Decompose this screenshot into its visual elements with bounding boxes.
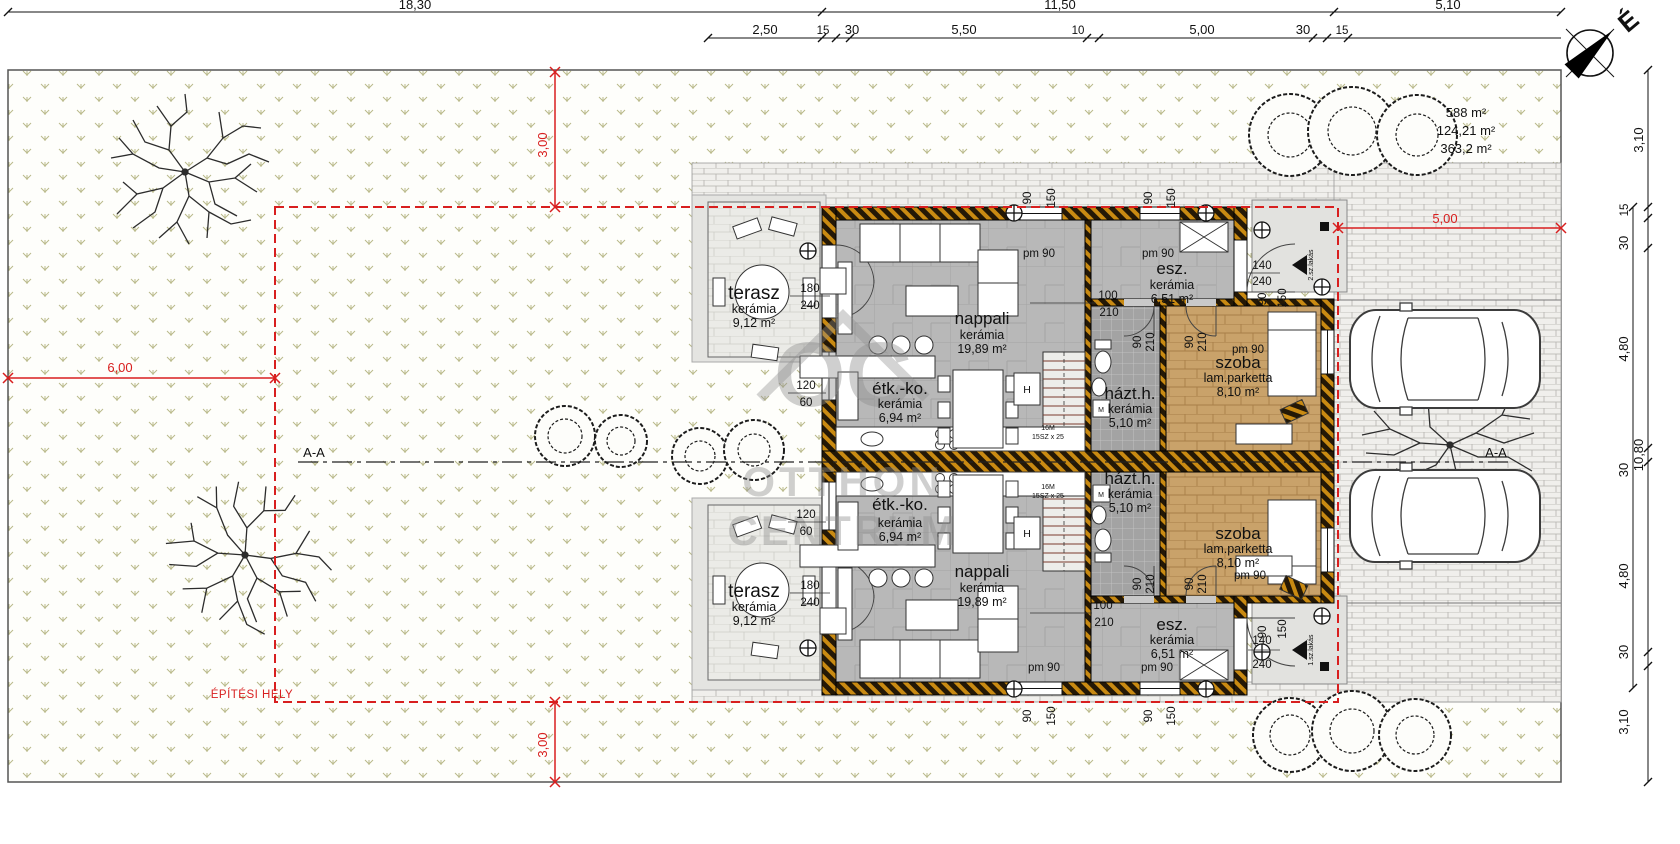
room-etkko-upper-area: 6,94 m² [879, 411, 921, 425]
paving-driveway [1334, 163, 1561, 702]
room-door-h: 210 [1145, 574, 1157, 593]
room-terasz-lower-area: 9,12 m² [733, 614, 775, 628]
room-nappali-lower-floor-label: kerámia [960, 581, 1005, 595]
stairs-note-upper-2: 15SZ x 25 [1032, 434, 1064, 441]
dining-table [953, 370, 1003, 448]
car [1350, 463, 1540, 569]
hall-door-h-upper: 210 [1099, 307, 1118, 319]
terrace-door-h-lower: 240 [800, 597, 819, 609]
dim-10: 10 [1072, 25, 1085, 37]
room-nappali-lower: nappali [955, 562, 1010, 581]
top-window-h: 150 [1046, 188, 1058, 207]
room-nappali-upper: nappali [955, 309, 1010, 328]
north-compass: É [1565, 4, 1645, 78]
room-door-h: 210 [1145, 332, 1157, 351]
bottom-window-h: 150 [1166, 706, 1178, 725]
entry-side-h-lower: 150 [1277, 619, 1289, 638]
section-label-right: A-A [1485, 445, 1507, 460]
kitchen-window-h-upper: 60 [800, 397, 813, 409]
car [1350, 303, 1540, 415]
room-hazth-upper-area: 5,10 m² [1109, 416, 1151, 430]
dim-right-30-mid: 30 [1616, 463, 1631, 477]
room-door-w: 90 [1184, 578, 1196, 591]
room-esz-upper-area: 6,51 m² [1151, 292, 1193, 306]
stairs-note-lower-1: 16M [1041, 484, 1055, 491]
entry-door-h-lower: 240 [1252, 659, 1271, 671]
room-szoba-lower: szoba [1215, 524, 1261, 543]
room-door-h: 210 [1197, 332, 1209, 351]
top-window-w: 90 [1143, 192, 1155, 205]
entry-door-w-upper: 140 [1252, 260, 1271, 272]
dim-right-4-80-top: 4,80 [1616, 336, 1631, 361]
entry-door-upper [1234, 240, 1247, 292]
toilet [1095, 351, 1111, 373]
hall-door-w-lower: 100 [1093, 600, 1112, 612]
dim-right-30-bottom: 30 [1616, 645, 1631, 659]
porch-post [1320, 662, 1329, 671]
top-window-w: 90 [1022, 192, 1034, 205]
dim-5-50: 5,50 [951, 22, 976, 37]
room-door-h: 210 [1197, 574, 1209, 593]
room-terasz-lower: terasz [728, 581, 780, 602]
dim-2-50: 2,50 [752, 22, 777, 37]
room-etkko-lower-floor-label: kerámia [878, 516, 923, 530]
area-124-21: 124,21 m² [1437, 123, 1496, 138]
washer-label-lower: M [1098, 492, 1104, 499]
dim-11-50: 11,50 [1044, 0, 1076, 12]
entry-side-w-lower: 90 [1257, 626, 1269, 639]
building-site-label: ÉPÍTÉSI HELY [211, 688, 293, 701]
room-esz-lower-area: 6,51 m² [1151, 647, 1193, 661]
sill-label: pm 90 [1028, 662, 1060, 674]
kitchen-window-h-lower: 60 [800, 526, 813, 538]
dim-30: 30 [1296, 22, 1310, 37]
room-nappali-upper-area: 19,89 m² [957, 342, 1006, 356]
area-588: 588 m² [1446, 105, 1487, 120]
room-terasz-upper-area: 9,12 m² [733, 316, 775, 330]
terrace-door-h-upper: 240 [800, 300, 819, 312]
dim-right-3-10-top: 3,10 [1631, 127, 1646, 152]
room-esz-lower: esz. [1156, 615, 1187, 634]
dim-5-10: 5,10 [1435, 0, 1460, 12]
terrace-door-w-upper: 180 [800, 283, 819, 295]
room-hazth-upper: házt.h. [1104, 384, 1155, 403]
sill-label: pm 90 [1023, 248, 1055, 260]
red-dim-right: 5,00 [1432, 211, 1457, 226]
dim-right-3-10-bottom: 3,10 [1616, 709, 1631, 734]
porch-post [1320, 222, 1329, 231]
terrace-door-w-lower: 180 [800, 580, 819, 592]
room-szoba-upper-area: 8,10 m² [1217, 385, 1259, 399]
dim-right-4-80-bottom: 4,80 [1616, 563, 1631, 588]
room-terasz-upper-floor-label: kerámia [732, 302, 777, 316]
area-363-2: 363,2 m² [1440, 141, 1492, 156]
fridge-label-lower: H [1023, 528, 1031, 540]
red-dim-top: 3,00 [535, 132, 550, 157]
apartment1-label: 1.sz.lakás [1308, 634, 1315, 666]
stairs-note-upper-1: 16M [1041, 425, 1055, 432]
site-plan-page: OC OTTHON CENTRUM 3,00 3,00 6,00 5,00 ÉP… [0, 0, 1680, 839]
red-dim-left: 6,00 [107, 360, 132, 375]
toilet-tank [1095, 553, 1111, 562]
sill-label: pm 90 [1142, 248, 1174, 260]
room-door-w: 90 [1184, 336, 1196, 349]
floor-plan-drawing: OC OTTHON CENTRUM 3,00 3,00 6,00 5,00 ÉP… [0, 0, 1680, 839]
sink [1092, 506, 1106, 524]
room-hazth-lower: házt.h. [1104, 469, 1155, 488]
room-esz-lower-floor-label: kerámia [1150, 633, 1195, 647]
toilet [1095, 529, 1111, 551]
room-nappali-upper-floor-label: kerámia [960, 328, 1005, 342]
room-etkko-upper-floor-label: kerámia [878, 397, 923, 411]
dim-right-15: 15 [1619, 204, 1631, 217]
kitchen-window-w-upper: 120 [796, 380, 815, 392]
room-esz-upper: esz. [1156, 259, 1187, 278]
dim-5-00: 5,00 [1189, 22, 1214, 37]
bottom-window-h: 150 [1046, 706, 1058, 725]
dim-15: 15 [817, 25, 830, 37]
room-terasz-upper: terasz [728, 283, 780, 304]
top-window-h: 150 [1166, 188, 1178, 207]
fridge-label-upper: H [1023, 384, 1031, 396]
hall-door-h-lower: 210 [1094, 617, 1113, 629]
room-hazth-lower-floor-label: kerámia [1108, 487, 1153, 501]
watermark-line2: CENTRUM [728, 507, 959, 554]
section-label-left: A-A [303, 445, 325, 460]
room-szoba-lower-floor-label: lam.parketta [1204, 542, 1273, 556]
entry-side-h-upper: 150 [1277, 288, 1289, 307]
red-dim-bottom: 3,00 [535, 732, 550, 757]
apartment2-label: 2.sz.lakás [1308, 249, 1315, 281]
room-door-w: 90 [1132, 578, 1144, 591]
bottom-window-w: 90 [1022, 710, 1034, 723]
sill-label: pm 90 [1232, 344, 1264, 356]
room-etkko-upper: étk.-ko. [872, 379, 928, 398]
room-hazth-upper-floor-label: kerámia [1108, 402, 1153, 416]
dim-right-10-80: 10,80 [1631, 439, 1646, 472]
desk [1236, 424, 1292, 444]
washer-label-upper: M [1098, 407, 1104, 414]
north-arrow [1565, 23, 1620, 78]
bottom-window-w: 90 [1143, 710, 1155, 723]
sill-label: pm 90 [1234, 570, 1266, 582]
dim-30: 30 [845, 22, 859, 37]
room-nappali-lower-area: 19,89 m² [957, 595, 1006, 609]
room-etkko-lower: étk.-ko. [872, 495, 928, 514]
sill-label: pm 90 [1141, 662, 1173, 674]
dim-right-30: 30 [1616, 236, 1631, 250]
kitchen-window-w-lower: 120 [796, 509, 815, 521]
dining-table [953, 475, 1003, 553]
room-hazth-lower-area: 5,10 m² [1109, 501, 1151, 515]
room-terasz-lower-floor-label: kerámia [732, 600, 777, 614]
bed [1268, 312, 1316, 396]
bush-row-bottom-right [1253, 691, 1451, 772]
stairs-note-lower-2: 15SZ x 25 [1032, 493, 1064, 500]
dim-18-30: 18,30 [399, 0, 432, 12]
entry-side-w-upper: 90 [1257, 293, 1269, 306]
room-etkko-lower-area: 6,94 m² [879, 530, 921, 544]
room-szoba-lower-area: 8,10 m² [1217, 556, 1259, 570]
hall-door-w-upper: 100 [1098, 290, 1117, 302]
room-szoba-upper-floor-label: lam.parketta [1204, 371, 1273, 385]
toilet-tank [1095, 340, 1111, 349]
entry-door-h-upper: 240 [1252, 276, 1271, 288]
room-esz-upper-floor-label: kerámia [1150, 278, 1195, 292]
entry-door-lower [1234, 618, 1247, 670]
bush-row-top-right [1249, 87, 1457, 176]
dim-15: 15 [1336, 25, 1349, 37]
room-door-w: 90 [1132, 336, 1144, 349]
north-label: É [1612, 4, 1645, 38]
